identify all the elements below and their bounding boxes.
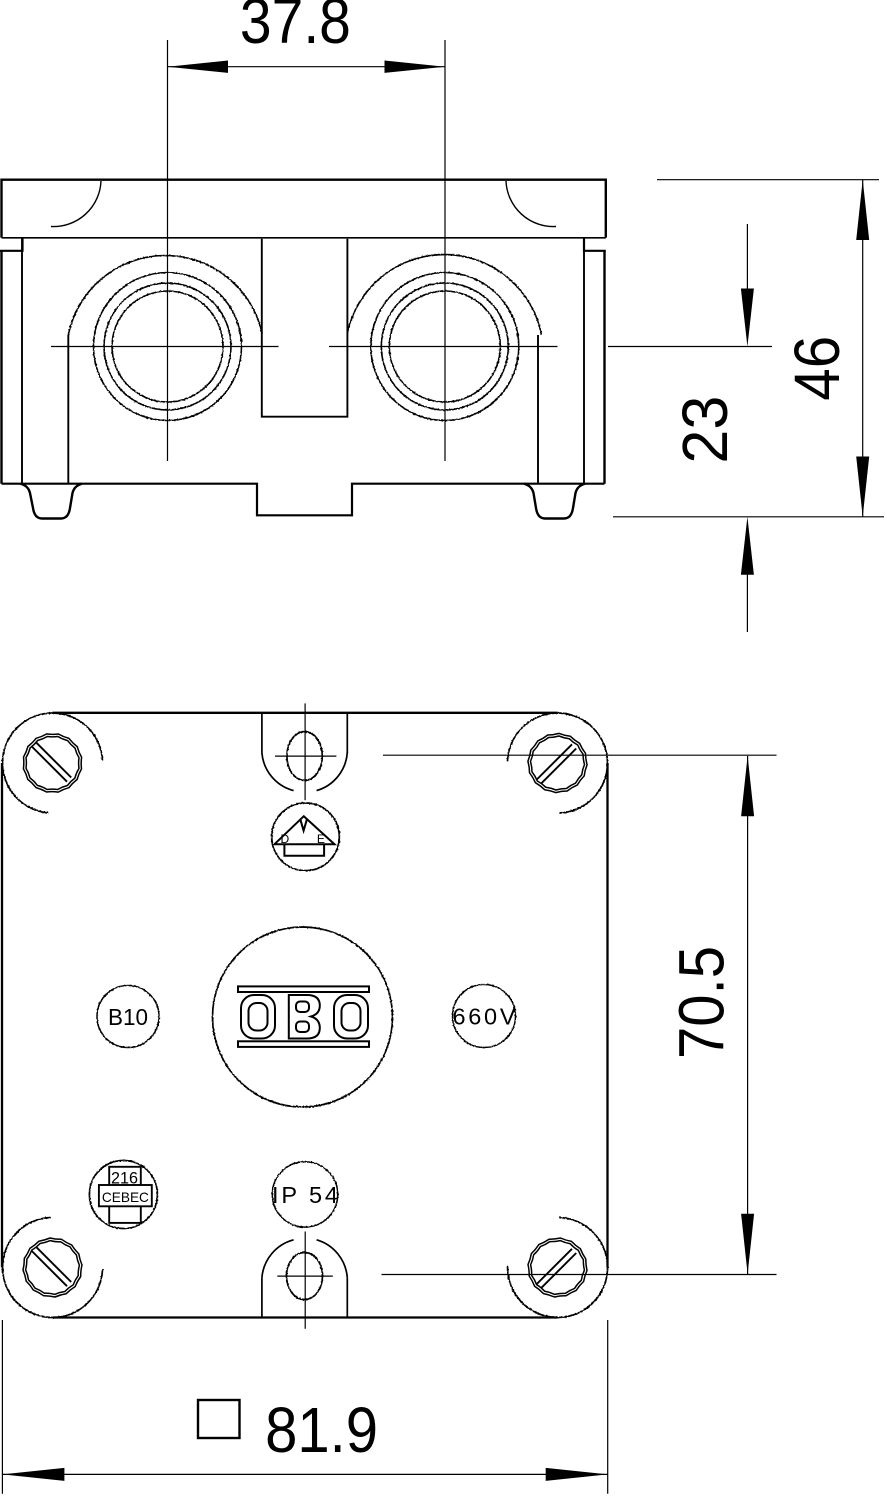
svg-text:B10: B10 (108, 1004, 148, 1030)
svg-text:46: 46 (781, 336, 853, 401)
svg-text:CEBEC: CEBEC (102, 1189, 149, 1205)
svg-text:216: 216 (111, 1170, 138, 1188)
svg-text:E: E (317, 832, 325, 846)
svg-text:660V: 660V (453, 1004, 516, 1030)
svg-text:D: D (281, 832, 290, 846)
svg-text:23: 23 (669, 396, 741, 464)
svg-text:70.5: 70.5 (665, 946, 737, 1059)
svg-text:81.9: 81.9 (265, 1394, 378, 1466)
svg-text:37.8: 37.8 (240, 0, 351, 57)
svg-text:IP 54: IP 54 (272, 1182, 338, 1208)
